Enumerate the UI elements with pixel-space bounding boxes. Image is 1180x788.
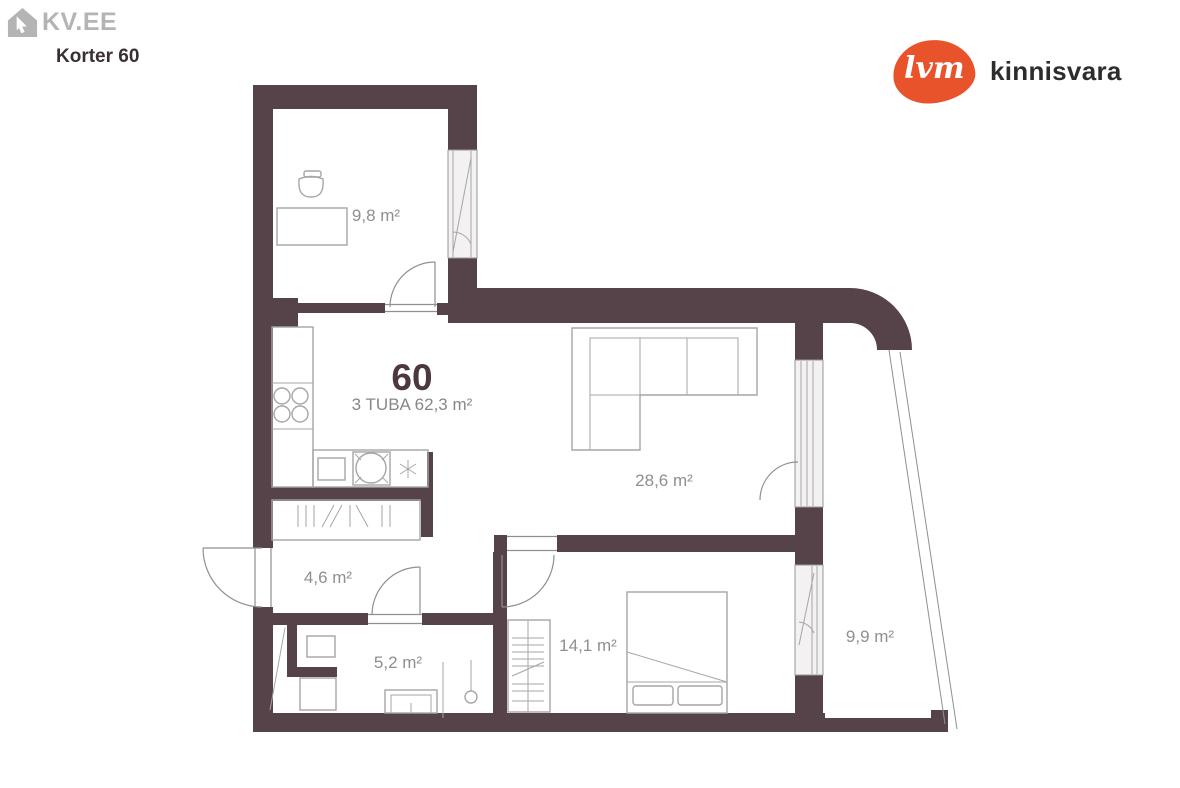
bedroom-wardrobe <box>508 620 550 712</box>
fridge-snowflake-icon <box>400 460 416 478</box>
stove-burner <box>274 388 290 404</box>
hall-wardrobe <box>272 500 420 540</box>
room-area-bathroom: 5,2 m² <box>374 653 423 672</box>
blanket-fold <box>627 652 727 682</box>
pillow <box>678 686 722 705</box>
office-chair <box>299 177 323 198</box>
balcony-corner-wall <box>850 306 895 351</box>
room-area-balcony: 9,9 m² <box>846 627 895 646</box>
apartment-number: 60 <box>391 357 432 398</box>
pillow <box>633 686 673 705</box>
bedroom-door <box>502 555 554 607</box>
bedroom-window <box>795 565 823 675</box>
bathroom-door <box>372 567 420 615</box>
sink-basin <box>356 453 386 483</box>
furniture <box>270 171 757 718</box>
shower-head <box>465 691 477 703</box>
bed <box>627 592 727 713</box>
sofa <box>572 328 757 450</box>
balcony-railing <box>889 350 957 729</box>
stove-burner <box>274 406 290 422</box>
room-area-living: 28,6 m² <box>635 471 693 490</box>
entrance-door <box>203 548 262 607</box>
kitchen-counter-bottom <box>313 450 428 487</box>
toilet <box>307 636 335 657</box>
office-door <box>390 262 435 307</box>
floor-plan: 60 3 TUBA 62,3 m² 9,8 m² 28,6 m² 4,6 m² … <box>0 0 1180 788</box>
stove-burner <box>292 406 308 422</box>
bathroom-sink <box>300 678 336 710</box>
office-window <box>448 150 477 258</box>
room-area-office: 9,8 m² <box>352 206 401 225</box>
office-desk <box>277 171 347 245</box>
apartment-summary: 3 TUBA 62,3 m² <box>352 395 473 414</box>
room-area-bedroom: 14,1 m² <box>559 636 617 655</box>
door-thresholds <box>255 305 557 624</box>
room-area-hallway: 4,6 m² <box>304 568 353 587</box>
balcony-door-window <box>795 360 823 507</box>
stove-burner <box>292 388 308 404</box>
balcony-door-swing <box>760 462 798 500</box>
cutting-board <box>318 458 345 480</box>
